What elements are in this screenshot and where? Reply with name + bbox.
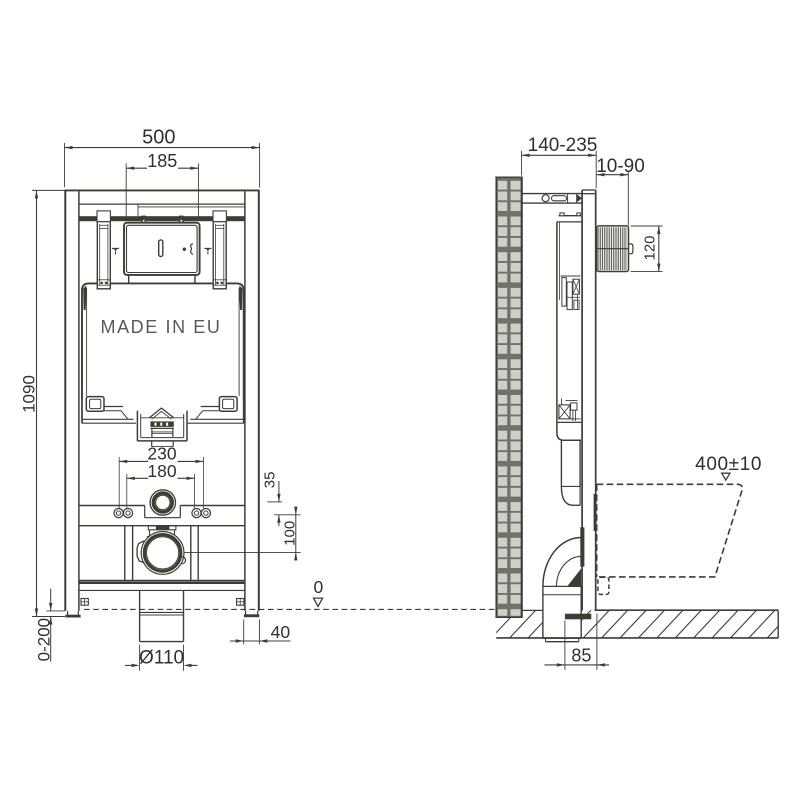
svg-text:10-90: 10-90: [596, 156, 645, 177]
svg-text:Ø110: Ø110: [139, 648, 184, 669]
svg-text:85: 85: [571, 646, 591, 666]
svg-text:100: 100: [281, 521, 298, 546]
svg-text:120: 120: [642, 235, 659, 260]
svg-text:40: 40: [271, 622, 291, 642]
svg-text:180: 180: [147, 461, 176, 481]
svg-text:1090: 1090: [20, 375, 39, 413]
svg-text:400±10: 400±10: [695, 454, 762, 475]
svg-text:0: 0: [314, 577, 324, 597]
svg-text:500: 500: [142, 126, 175, 148]
svg-text:185: 185: [147, 151, 177, 171]
svg-text:35: 35: [262, 472, 279, 489]
svg-text:140-235: 140-235: [528, 135, 598, 156]
svg-text:0-200: 0-200: [34, 618, 53, 661]
svg-text:MADE IN EU: MADE IN EU: [100, 317, 221, 337]
